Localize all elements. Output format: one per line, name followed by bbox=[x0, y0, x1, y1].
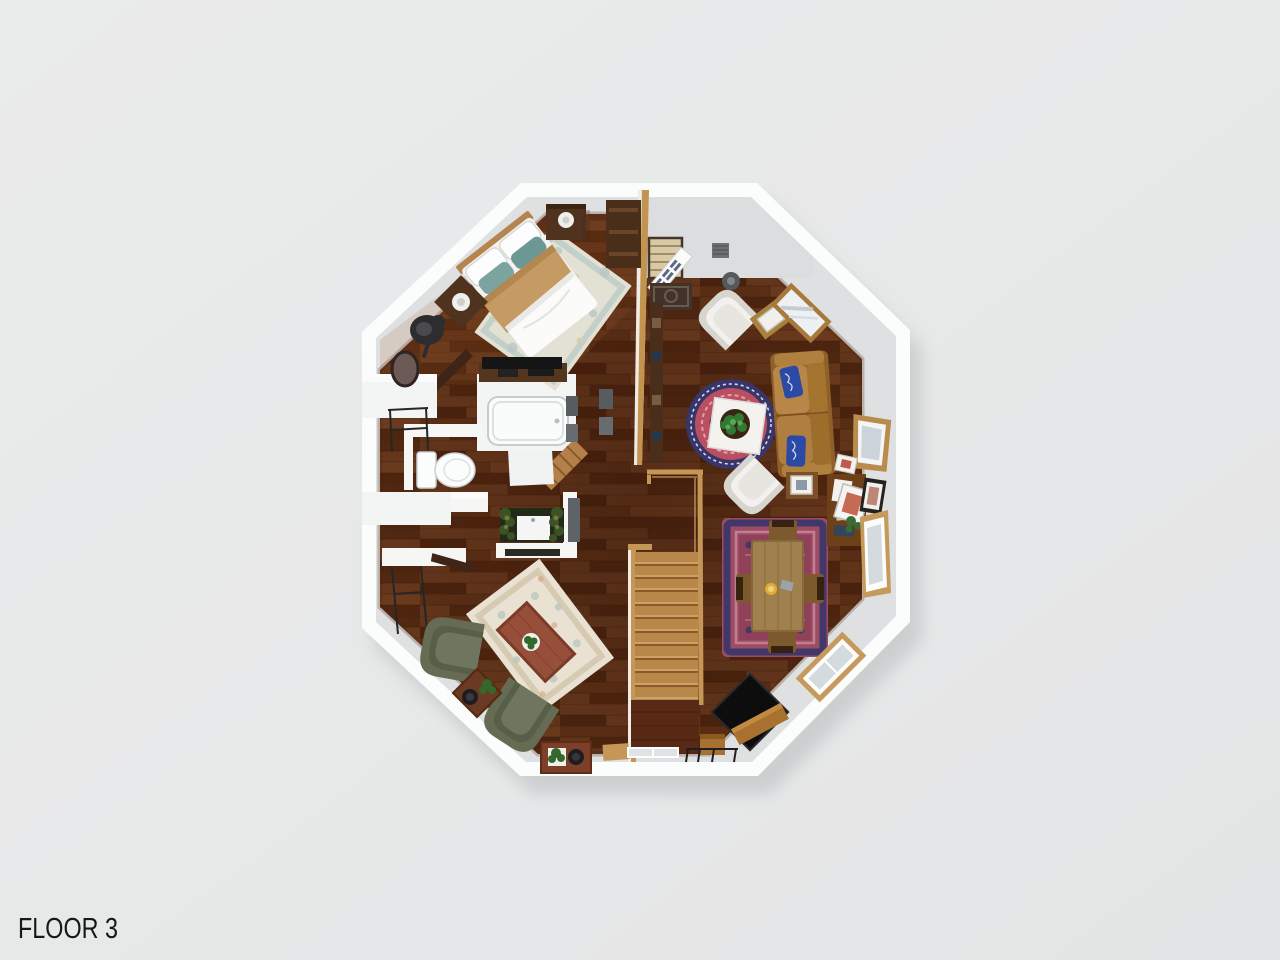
svg-text:FLOOR 3: FLOOR 3 bbox=[18, 913, 118, 945]
